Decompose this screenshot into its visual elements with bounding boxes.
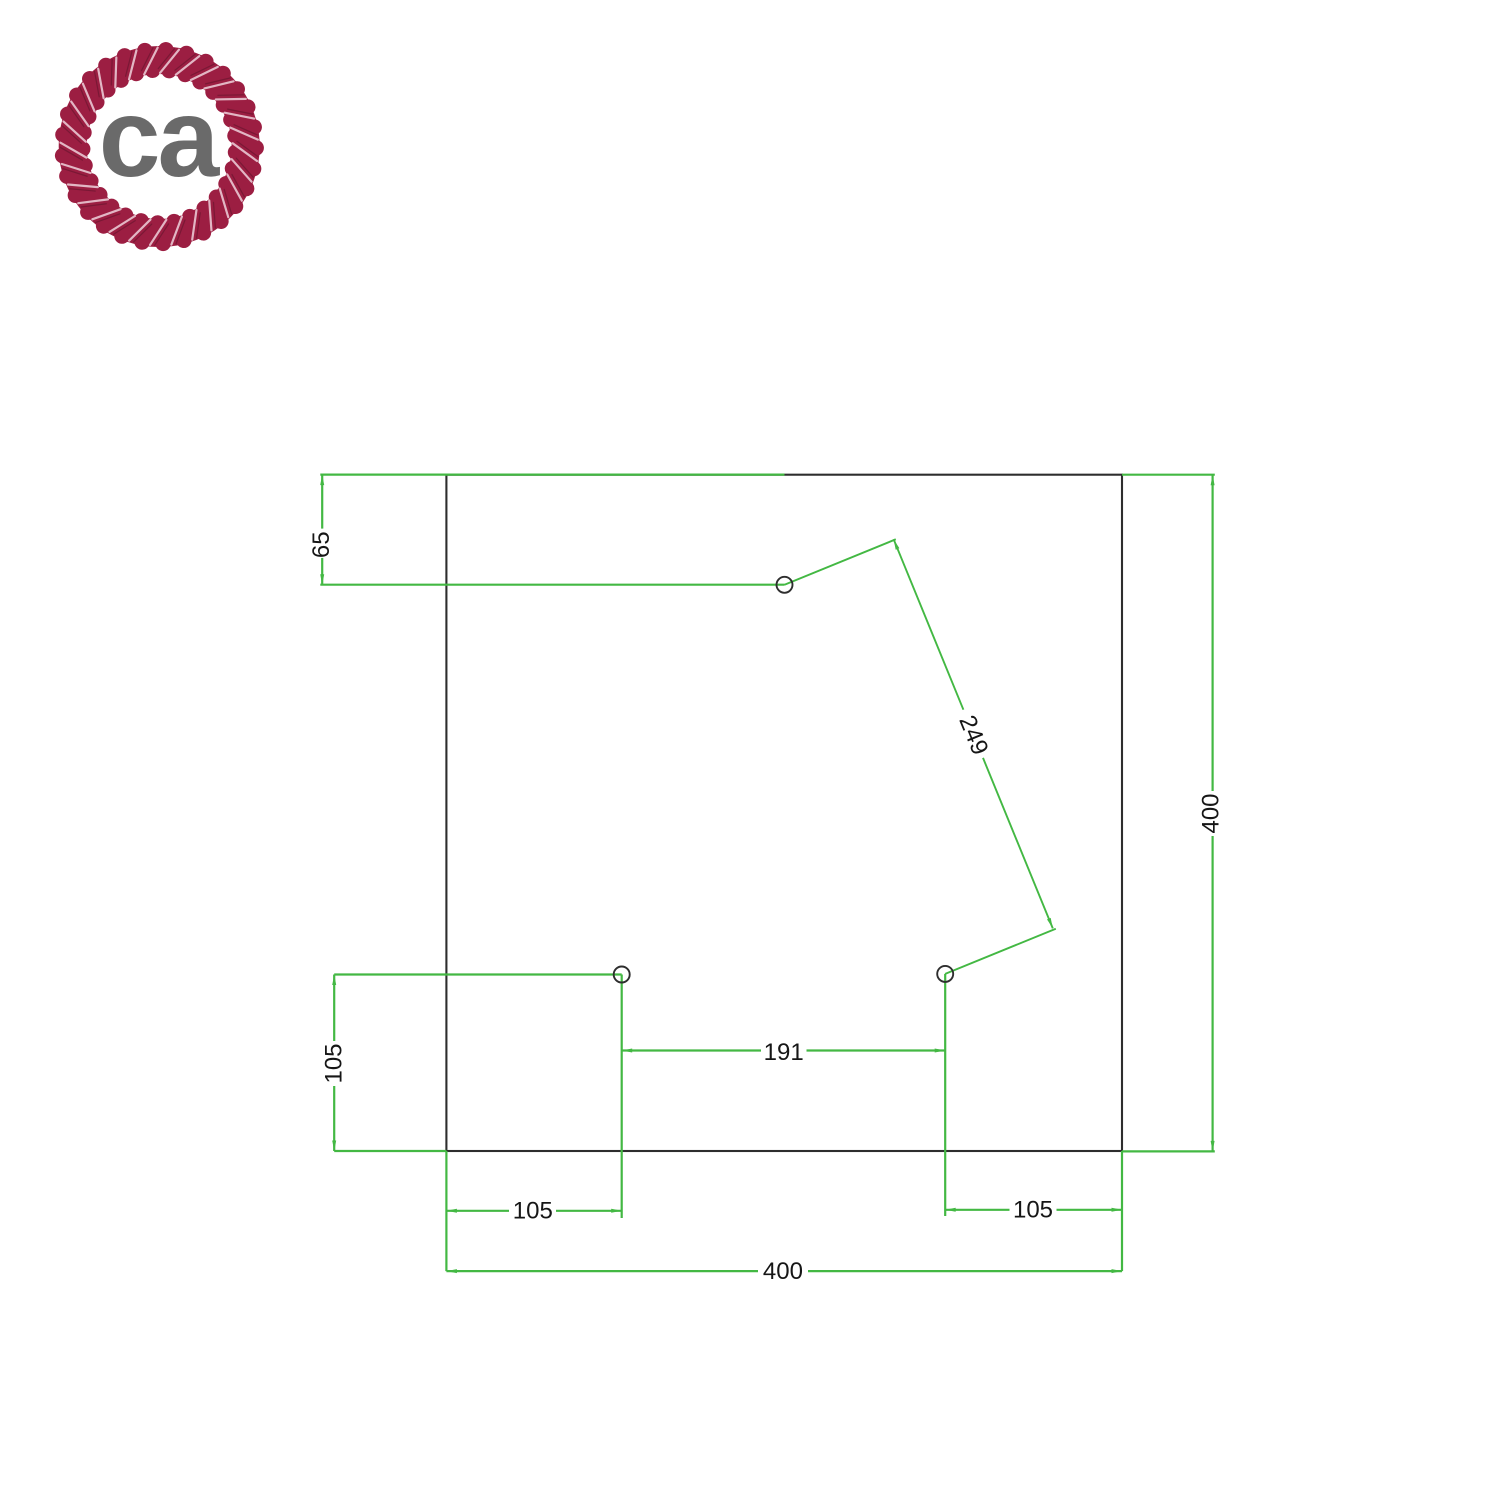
svg-text:ca: ca bbox=[99, 76, 221, 200]
svg-text:400: 400 bbox=[763, 1258, 803, 1285]
svg-text:105: 105 bbox=[513, 1198, 553, 1225]
svg-text:105: 105 bbox=[1013, 1197, 1053, 1224]
svg-text:105: 105 bbox=[321, 1043, 348, 1083]
svg-text:65: 65 bbox=[308, 531, 335, 558]
svg-text:400: 400 bbox=[1198, 793, 1225, 833]
svg-text:191: 191 bbox=[764, 1039, 804, 1066]
